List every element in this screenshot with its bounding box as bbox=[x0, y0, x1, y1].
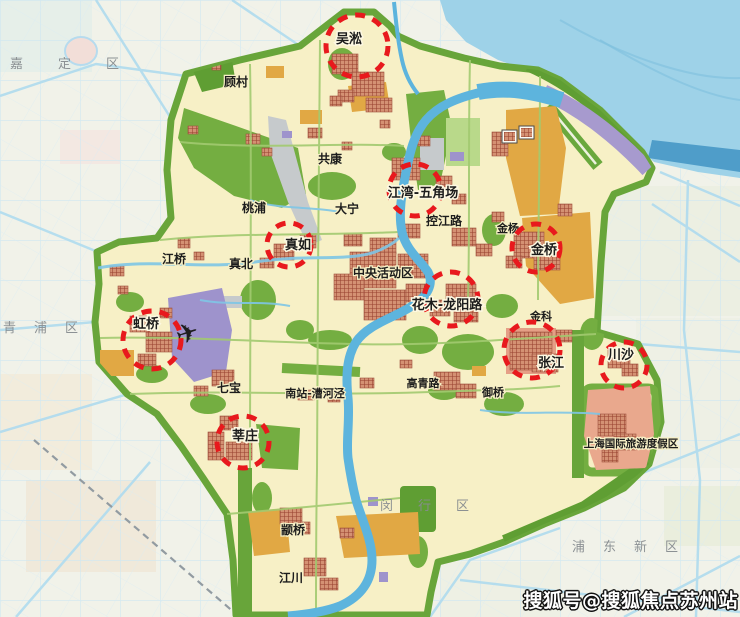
urban-block bbox=[400, 360, 412, 368]
area-label: 顾村 bbox=[224, 74, 248, 89]
shanghai-planning-map: ✈ 顾村共康桃浦大宁控江路金杨江桥真北中央活动区金科七宝南站-漕河泾高青路御桥上… bbox=[0, 0, 740, 617]
area-label: 大宁 bbox=[335, 201, 359, 216]
area-label: 七宝 bbox=[217, 380, 241, 395]
urban-block bbox=[330, 96, 342, 106]
shanghai-plan-map-image: ✈ 顾村共康桃浦大宁控江路金杨江桥真北中央活动区金科七宝南站-漕河泾高青路御桥上… bbox=[0, 0, 740, 617]
subcenter-label: 莘庄 bbox=[232, 428, 258, 444]
subcenter-label: 吴淞 bbox=[336, 31, 362, 47]
urban-block bbox=[380, 120, 390, 128]
urban-block bbox=[262, 148, 272, 156]
district-label: 青浦区 bbox=[3, 321, 96, 336]
urban-block bbox=[194, 252, 204, 260]
urban-block bbox=[246, 134, 260, 144]
area-label: 桃浦 bbox=[242, 200, 266, 215]
subcenter-label: 虹桥 bbox=[133, 316, 160, 332]
area-label: 真北 bbox=[229, 256, 253, 271]
building-icon bbox=[519, 126, 534, 139]
urban-block bbox=[110, 266, 124, 276]
urban-block bbox=[188, 126, 198, 134]
subcenter-label: 金桥 bbox=[530, 242, 558, 258]
watermark-text: 搜狐号@搜狐焦点苏州站 bbox=[523, 586, 738, 613]
urban-block bbox=[492, 212, 504, 222]
area-label: 御桥 bbox=[481, 385, 505, 399]
urban-block bbox=[452, 228, 476, 246]
urban-block bbox=[598, 414, 626, 436]
urban-block bbox=[558, 204, 572, 216]
urban-block bbox=[178, 238, 190, 248]
urban-block bbox=[622, 364, 638, 376]
urban-block bbox=[280, 508, 302, 524]
area-label: 江桥 bbox=[162, 251, 187, 266]
urban-block bbox=[118, 286, 128, 294]
urban-block bbox=[226, 442, 252, 460]
subcenter-label: 川沙 bbox=[607, 348, 634, 363]
urban-block bbox=[344, 234, 362, 246]
urban-block bbox=[602, 450, 618, 462]
urban-block bbox=[146, 332, 172, 352]
urban-block bbox=[332, 54, 358, 74]
area-label: 共康 bbox=[318, 151, 343, 166]
urban-block bbox=[342, 142, 352, 150]
district-label: 嘉定区 bbox=[10, 57, 154, 72]
urban-block bbox=[476, 244, 492, 256]
urban-block bbox=[320, 578, 338, 590]
urban-block bbox=[340, 528, 354, 538]
area-label: 颛桥 bbox=[281, 522, 306, 537]
area-label: 高青路 bbox=[407, 376, 441, 390]
area-label: 控江路 bbox=[426, 213, 463, 228]
district-label: 闵行区 bbox=[380, 499, 494, 514]
urban-block bbox=[194, 386, 208, 396]
subcenter-label: 江湾-五角场 bbox=[388, 185, 458, 201]
subcenter-label: 张江 bbox=[538, 355, 564, 371]
area-label: 中央活动区 bbox=[353, 265, 413, 280]
subcenter-label: 花木-龙阳路 bbox=[412, 297, 483, 313]
area-label: 南站-漕河泾 bbox=[285, 386, 345, 400]
area-label: 上海国际旅游度假区 bbox=[584, 437, 679, 450]
area-label: 江川 bbox=[279, 570, 303, 585]
urban-block bbox=[360, 378, 374, 388]
district-label: 浦东新区 bbox=[572, 539, 696, 555]
subcenter-label: 真如 bbox=[285, 237, 311, 253]
building-icon bbox=[502, 130, 517, 143]
urban-block bbox=[366, 98, 392, 112]
urban-block bbox=[304, 558, 326, 576]
